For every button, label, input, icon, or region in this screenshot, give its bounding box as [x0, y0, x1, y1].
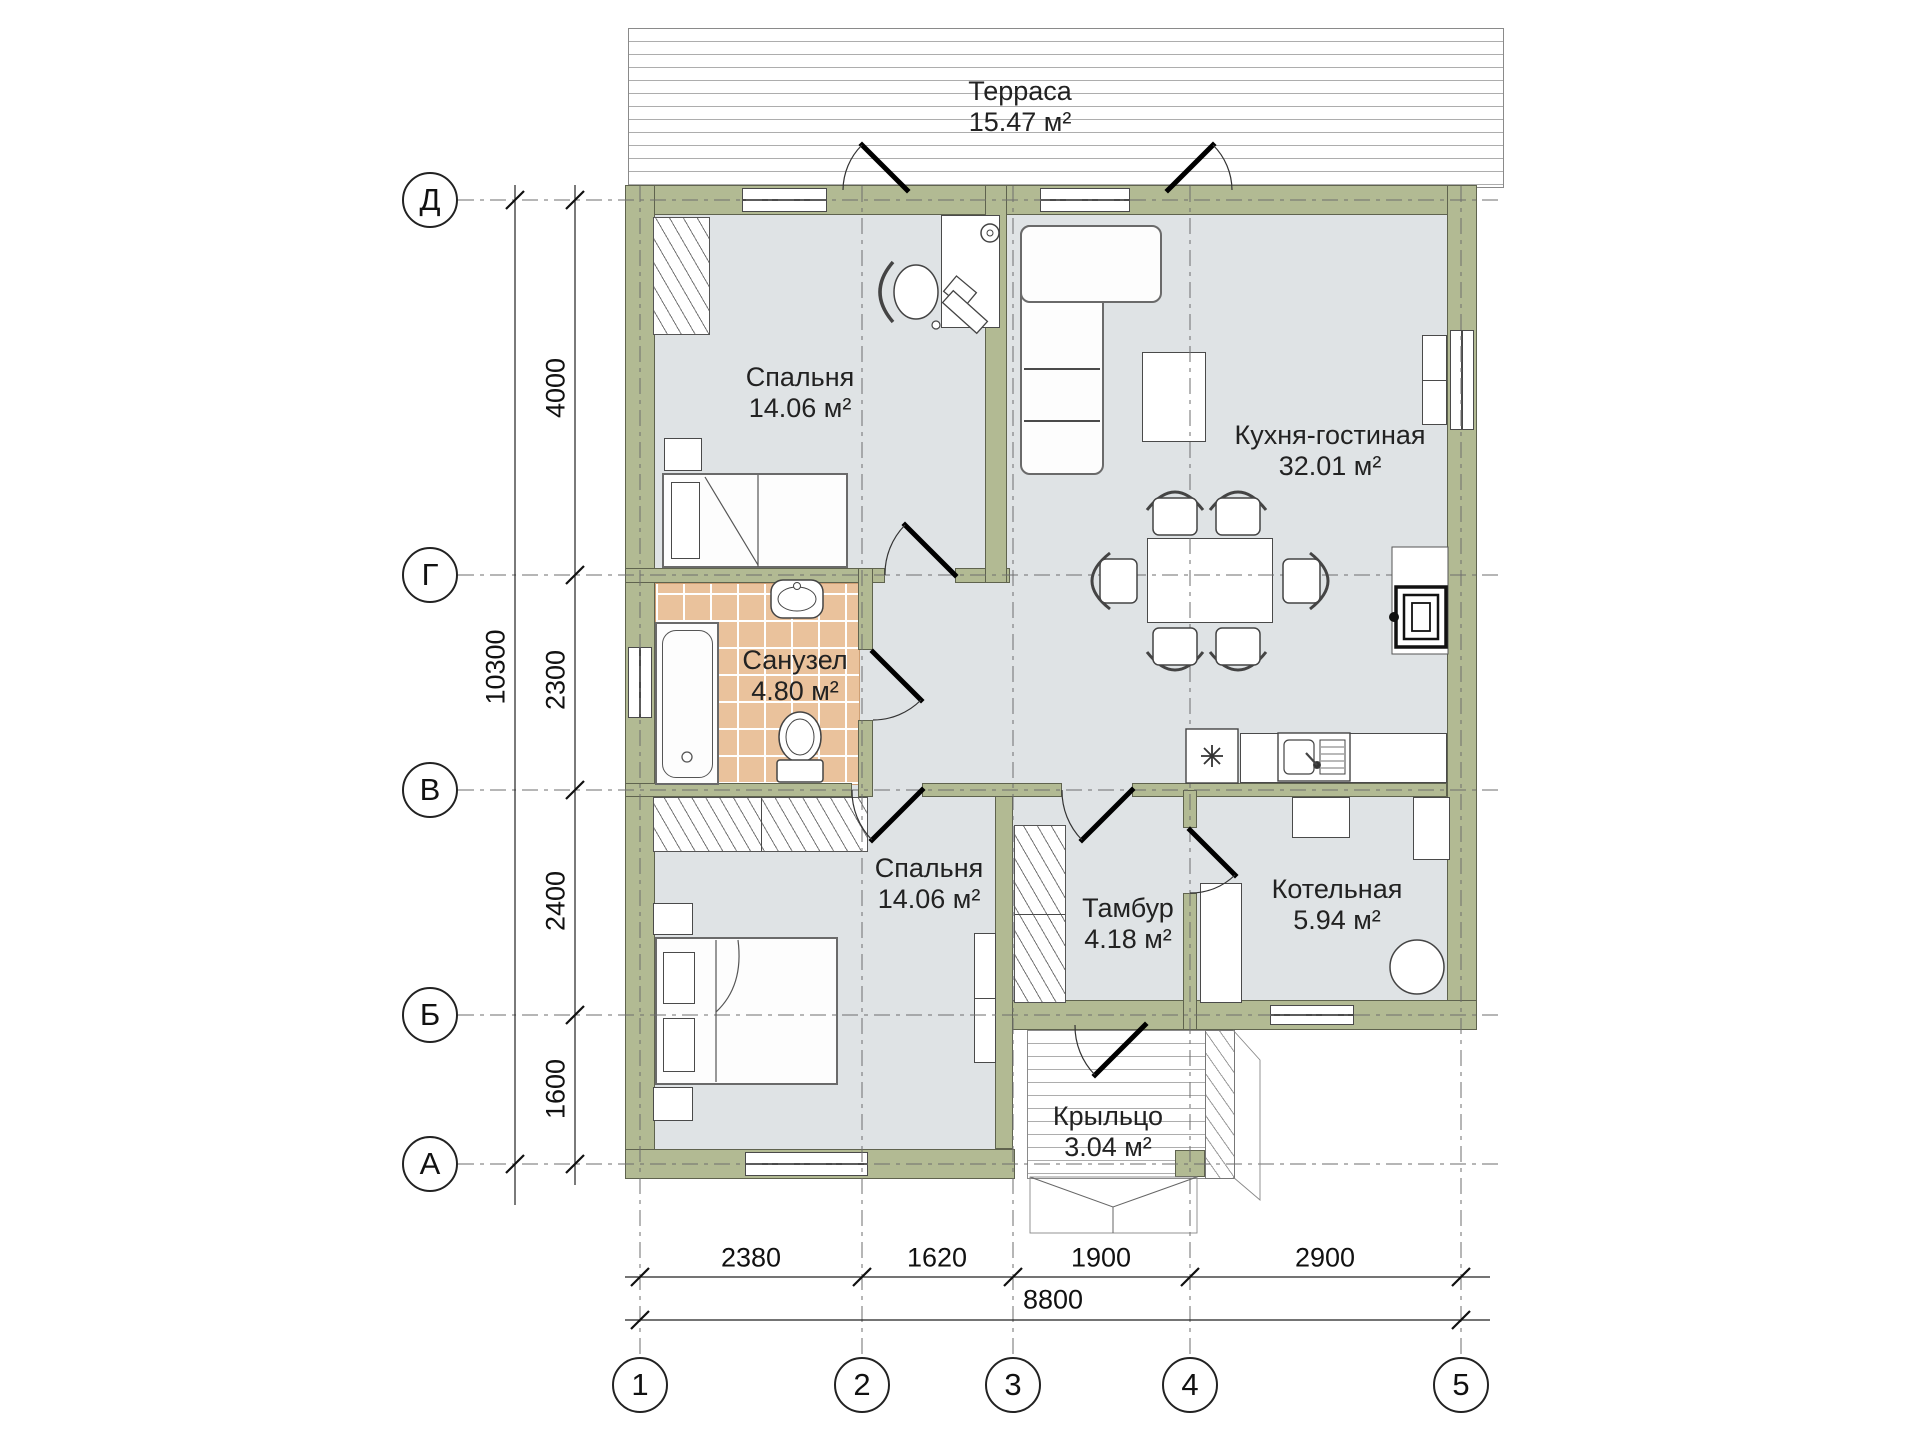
porch-steps — [1205, 1030, 1235, 1179]
room-name: Спальня — [829, 853, 1029, 884]
room-name: Котельная — [1237, 874, 1437, 905]
room-name: Тамбур — [1028, 893, 1228, 924]
axis-label: 3 — [1004, 1367, 1021, 1403]
wall-south-b — [995, 1000, 1477, 1030]
dim-horizontal-1620: 1620 — [907, 1243, 967, 1274]
pillow — [671, 482, 700, 559]
dresser-line — [975, 998, 995, 999]
nightstand — [664, 438, 702, 471]
wall-v-3 — [1132, 783, 1447, 797]
dim-horizontal-total: 8800 — [1023, 1285, 1083, 1316]
window-living — [1040, 188, 1130, 212]
room-area: 4.80 м² — [695, 676, 895, 707]
wardrobe — [653, 797, 868, 852]
room-label-bathroom: Санузел 4.80 м² — [695, 645, 895, 707]
wall-v-2 — [922, 783, 1062, 797]
dining-table — [1147, 538, 1273, 623]
kitchen-counter — [1240, 733, 1447, 783]
wall-tambour-boiler-upper — [1183, 790, 1197, 828]
axis-col-5: 5 — [1433, 1357, 1489, 1413]
room-area: 32.01 м² — [1205, 451, 1455, 482]
window-boiler-room — [1270, 1005, 1354, 1025]
floor-plan-canvas: Терраса 15.47 м² Спальня 14.06 м² Кухня-… — [0, 0, 1920, 1440]
axis-label: А — [420, 1146, 441, 1182]
dim-vertical-2400: 2400 — [541, 871, 572, 931]
room-name: Терраса — [895, 76, 1145, 107]
room-area: 14.06 м² — [829, 884, 1029, 915]
doorway-floor — [885, 568, 955, 583]
room-area: 4.18 м² — [1028, 924, 1228, 955]
dim-vertical-2300: 2300 — [541, 650, 572, 710]
room-name: Санузел — [695, 645, 895, 676]
room-label-bedroom-top: Спальня 14.06 м² — [700, 362, 900, 424]
room-name: Крыльцо — [1008, 1101, 1208, 1132]
dim-horizontal-1900: 1900 — [1071, 1243, 1131, 1274]
room-area: 3.04 м² — [1008, 1132, 1208, 1163]
sofa-cushion-line — [1024, 368, 1100, 370]
sofa-section-horizontal — [1020, 225, 1162, 303]
room-area: 15.47 м² — [895, 107, 1145, 138]
axis-row-v: В — [402, 762, 458, 818]
axis-label: Б — [420, 997, 440, 1033]
dim-vertical-4000: 4000 — [541, 358, 572, 418]
room-label-porch: Крыльцо 3.04 м² — [1008, 1101, 1208, 1163]
axis-col-1: 1 — [612, 1357, 668, 1413]
room-label-terrace: Терраса 15.47 м² — [895, 76, 1145, 138]
axis-label: 1 — [631, 1367, 648, 1403]
axis-col-3: 3 — [985, 1357, 1041, 1413]
axis-col-4: 4 — [1162, 1357, 1218, 1413]
wall-bathroom-right-upper — [858, 568, 873, 650]
coffee-table — [1142, 352, 1206, 442]
axis-label: 2 — [853, 1367, 870, 1403]
dim-vertical-1600: 1600 — [541, 1059, 572, 1119]
sofa-cushion-line — [1024, 420, 1100, 422]
axis-row-b: Б — [402, 987, 458, 1043]
room-name: Спальня — [700, 362, 900, 393]
window-living-right — [1450, 330, 1474, 430]
window-bathroom — [628, 647, 652, 718]
pillow — [663, 1018, 695, 1072]
window-bedroom-top — [742, 188, 827, 212]
room-area: 5.94 м² — [1237, 905, 1437, 936]
wall-v-1 — [625, 783, 852, 797]
axis-label: 5 — [1452, 1367, 1469, 1403]
doorway-floor — [1183, 828, 1197, 893]
room-name: Кухня-гостиная — [1205, 420, 1455, 451]
room-label-tambour: Тамбур 4.18 м² — [1028, 893, 1228, 955]
room-label-bedroom-bottom: Спальня 14.06 м² — [829, 853, 1029, 915]
dim-horizontal-2900: 2900 — [1295, 1243, 1355, 1274]
axis-row-g: Г — [402, 547, 458, 603]
nightstand — [653, 903, 693, 935]
wardrobe — [653, 217, 710, 335]
boiler-equipment — [1292, 797, 1350, 838]
boiler-equipment — [1413, 797, 1450, 860]
axis-label: Г — [422, 557, 439, 593]
dim-horizontal-2380: 2380 — [721, 1243, 781, 1274]
wall-bedroom-bottom-right — [995, 783, 1013, 1149]
dim-vertical-total: 10300 — [481, 629, 512, 704]
wardrobe-divider — [761, 798, 762, 851]
axis-label: В — [420, 772, 441, 808]
tv-bench-line — [1423, 380, 1446, 381]
room-label-kitchen-living: Кухня-гостиная 32.01 м² — [1205, 420, 1455, 482]
doorway-floor — [1062, 783, 1132, 797]
axis-col-2: 2 — [834, 1357, 890, 1413]
tv-bench — [1422, 335, 1447, 425]
wall-right — [1447, 185, 1477, 1030]
pillow — [663, 952, 695, 1004]
axis-label: Д — [420, 182, 441, 218]
room-label-boiler-room: Котельная 5.94 м² — [1237, 874, 1437, 936]
room-area: 14.06 м² — [700, 393, 900, 424]
nightstand — [653, 1087, 693, 1121]
desk — [941, 215, 1000, 328]
dresser — [974, 933, 996, 1063]
wall-g-left — [625, 568, 885, 583]
wall-bathroom-right-lower — [858, 720, 873, 797]
axis-label: 4 — [1181, 1367, 1198, 1403]
window-bedroom-bottom — [745, 1152, 868, 1176]
axis-row-a: А — [402, 1136, 458, 1192]
axis-row-d: Д — [402, 172, 458, 228]
